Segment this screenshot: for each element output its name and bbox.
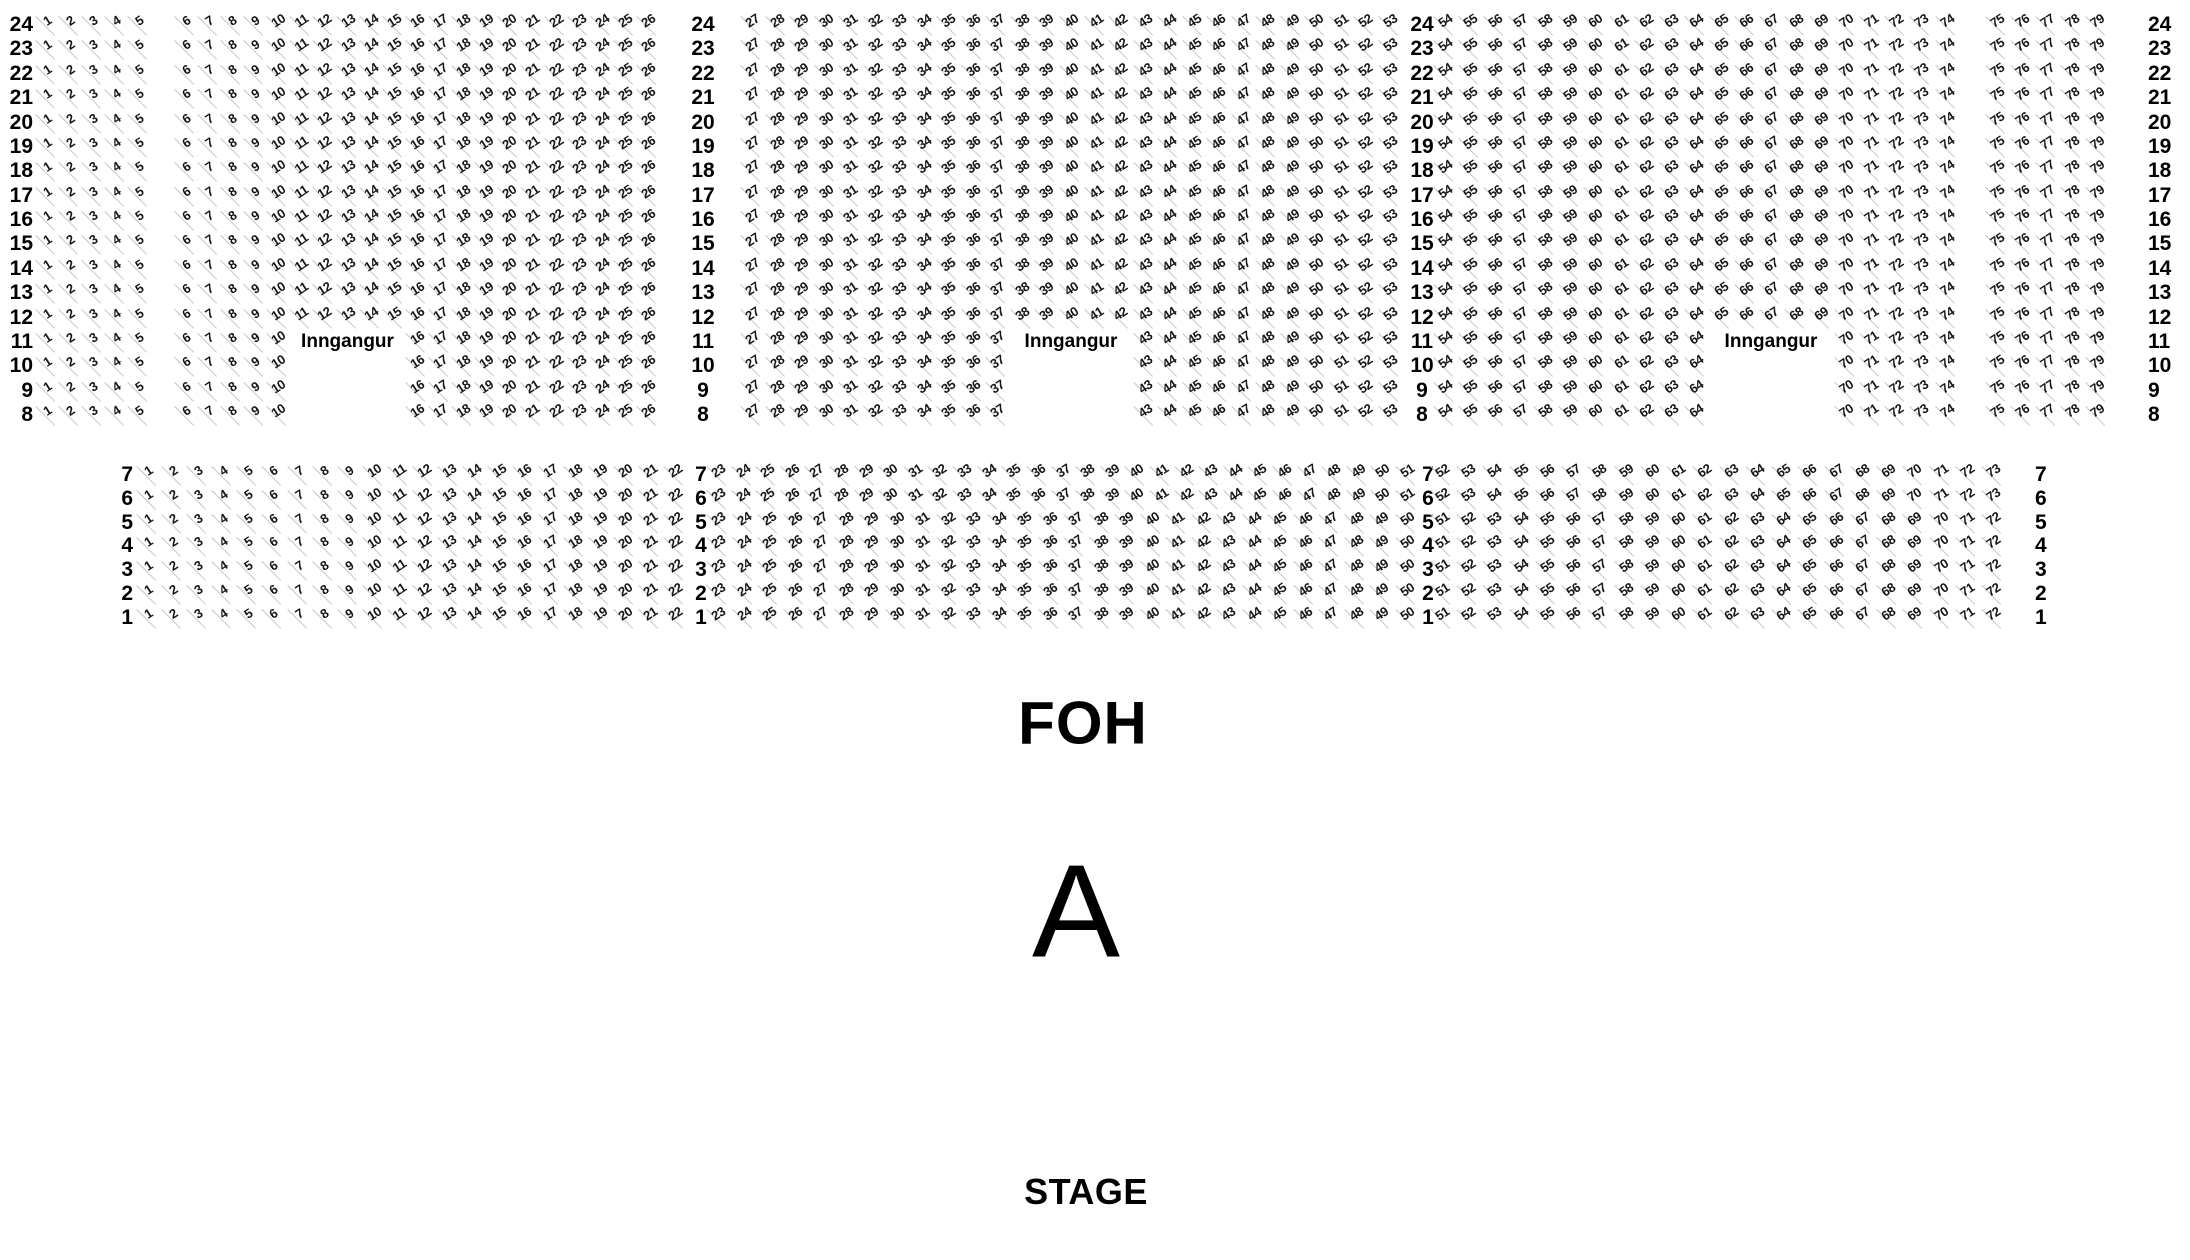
seat[interactable]: 76 (2011, 208, 2033, 232)
seat[interactable]: 25 (758, 534, 780, 558)
seat[interactable]: 14 (360, 86, 382, 110)
seat[interactable]: 74 (1936, 403, 1958, 427)
seat[interactable]: 59 (1641, 606, 1663, 630)
seat[interactable]: 7 (198, 330, 220, 354)
seat[interactable]: 54 (1434, 403, 1456, 427)
seat[interactable]: 36 (962, 354, 984, 378)
seat[interactable]: 65 (1710, 62, 1732, 86)
seat[interactable]: 8 (313, 463, 335, 487)
seat[interactable]: 66 (1735, 306, 1757, 330)
seat[interactable]: 38 (1090, 534, 1112, 558)
seat[interactable]: 24 (591, 306, 613, 330)
seat[interactable]: 53 (1379, 330, 1401, 354)
seat[interactable]: 14 (360, 306, 382, 330)
seat[interactable]: 41 (1150, 463, 1172, 487)
seat[interactable]: 2 (162, 487, 184, 511)
seat[interactable]: 73 (1910, 379, 1932, 403)
seat[interactable]: 73 (1910, 135, 1932, 159)
seat[interactable]: 73 (1910, 86, 1932, 110)
seat[interactable]: 9 (338, 534, 360, 558)
seat[interactable]: 58 (1534, 208, 1556, 232)
seat[interactable]: 34 (913, 135, 935, 159)
seat[interactable]: 28 (835, 534, 857, 558)
seat[interactable]: 8 (313, 558, 335, 582)
seat[interactable]: 53 (1379, 379, 1401, 403)
seat[interactable]: 69 (1810, 135, 1832, 159)
seat[interactable]: 25 (614, 159, 636, 183)
seat[interactable]: 75 (1986, 257, 2008, 281)
seat[interactable]: 6 (175, 232, 197, 256)
seat[interactable]: 52 (1457, 606, 1479, 630)
seat[interactable]: 24 (732, 463, 754, 487)
seat[interactable]: 41 (1085, 208, 1107, 232)
seat[interactable]: 32 (864, 37, 886, 61)
seat[interactable]: 24 (591, 281, 613, 305)
seat[interactable]: 37 (1064, 558, 1086, 582)
seat[interactable]: 52 (1354, 379, 1376, 403)
seat[interactable]: 52 (1354, 354, 1376, 378)
seat[interactable]: 28 (766, 184, 788, 208)
seat[interactable]: 56 (1562, 534, 1584, 558)
seat[interactable]: 41 (1085, 306, 1107, 330)
seat[interactable]: 21 (521, 379, 543, 403)
seat[interactable]: 47 (1232, 232, 1254, 256)
seat[interactable]: 46 (1207, 379, 1229, 403)
seat[interactable]: 5 (128, 330, 150, 354)
seat[interactable]: 58 (1534, 184, 1556, 208)
seat[interactable]: 54 (1510, 558, 1532, 582)
seat[interactable]: 32 (864, 306, 886, 330)
seat[interactable]: 1 (36, 184, 58, 208)
seat[interactable]: 57 (1509, 354, 1531, 378)
seat[interactable]: 27 (741, 379, 763, 403)
seat[interactable]: 17 (539, 511, 561, 535)
seat[interactable]: 30 (886, 582, 908, 606)
seat[interactable]: 56 (1484, 208, 1506, 232)
seat[interactable]: 31 (911, 558, 933, 582)
seat[interactable]: 46 (1207, 257, 1229, 281)
seat[interactable]: 31 (839, 62, 861, 86)
seat[interactable]: 2 (59, 13, 81, 37)
seat[interactable]: 12 (413, 487, 435, 511)
seat[interactable]: 75 (1986, 111, 2008, 135)
seat[interactable]: 60 (1584, 111, 1606, 135)
seat[interactable]: 75 (1986, 135, 2008, 159)
seat[interactable]: 3 (187, 606, 209, 630)
seat[interactable]: 20 (498, 403, 520, 427)
seat[interactable]: 5 (237, 534, 259, 558)
seat[interactable]: 1 (36, 135, 58, 159)
seat[interactable]: 19 (589, 582, 611, 606)
seat[interactable]: 55 (1536, 534, 1558, 558)
seat[interactable]: 15 (488, 487, 510, 511)
seat[interactable]: 44 (1158, 257, 1180, 281)
seat[interactable]: 2 (162, 511, 184, 535)
seat[interactable]: 15 (488, 534, 510, 558)
seat[interactable]: 11 (388, 534, 410, 558)
seat[interactable]: 47 (1232, 208, 1254, 232)
seat[interactable]: 4 (105, 13, 127, 37)
seat[interactable]: 43 (1134, 13, 1156, 37)
seat[interactable]: 50 (1305, 281, 1327, 305)
seat[interactable]: 64 (1685, 111, 1707, 135)
seat[interactable]: 47 (1232, 257, 1254, 281)
seat[interactable]: 13 (438, 558, 460, 582)
seat[interactable]: 11 (290, 111, 312, 135)
seat[interactable]: 74 (1936, 208, 1958, 232)
seat[interactable]: 23 (568, 159, 590, 183)
seat[interactable]: 49 (1281, 379, 1303, 403)
seat[interactable]: 6 (175, 37, 197, 61)
seat[interactable]: 33 (888, 403, 910, 427)
seat[interactable]: 77 (2036, 232, 2058, 256)
seat[interactable]: 62 (1635, 208, 1657, 232)
seat[interactable]: 60 (1584, 257, 1606, 281)
seat[interactable]: 59 (1559, 330, 1581, 354)
seat[interactable]: 68 (1877, 511, 1899, 535)
seat[interactable]: 64 (1772, 534, 1794, 558)
seat[interactable]: 22 (545, 111, 567, 135)
seat[interactable]: 18 (452, 62, 474, 86)
seat[interactable]: 46 (1294, 534, 1316, 558)
seat[interactable]: 45 (1183, 257, 1205, 281)
seat[interactable]: 19 (589, 511, 611, 535)
seat[interactable]: 62 (1635, 257, 1657, 281)
seat[interactable]: 58 (1534, 111, 1556, 135)
seat[interactable]: 74 (1936, 306, 1958, 330)
seat[interactable]: 78 (2061, 159, 2083, 183)
seat[interactable]: 41 (1166, 606, 1188, 630)
seat[interactable]: 36 (1039, 511, 1061, 535)
seat[interactable]: 22 (545, 37, 567, 61)
seat[interactable]: 51 (1330, 86, 1352, 110)
seat[interactable]: 37 (986, 159, 1008, 183)
seat[interactable]: 29 (790, 184, 812, 208)
seat[interactable]: 71 (1860, 354, 1882, 378)
seat[interactable]: 55 (1536, 606, 1558, 630)
seat[interactable]: 51 (1330, 184, 1352, 208)
seat[interactable]: 35 (1002, 463, 1024, 487)
seat[interactable]: 40 (1060, 184, 1082, 208)
seat[interactable]: 8 (221, 135, 243, 159)
seat[interactable]: 44 (1158, 184, 1180, 208)
seat[interactable]: 73 (1910, 306, 1932, 330)
seat[interactable]: 51 (1396, 463, 1418, 487)
seat[interactable]: 8 (221, 111, 243, 135)
seat[interactable]: 58 (1534, 330, 1556, 354)
seat[interactable]: 17 (429, 62, 451, 86)
seat[interactable]: 12 (313, 306, 335, 330)
seat[interactable]: 52 (1354, 111, 1376, 135)
seat[interactable]: 34 (913, 159, 935, 183)
seat[interactable]: 34 (913, 208, 935, 232)
seat[interactable]: 28 (766, 281, 788, 305)
seat[interactable]: 29 (860, 511, 882, 535)
seat[interactable]: 74 (1936, 330, 1958, 354)
seat[interactable]: 4 (105, 403, 127, 427)
seat[interactable]: 72 (1956, 463, 1978, 487)
seat[interactable]: 20 (498, 354, 520, 378)
seat[interactable]: 77 (2036, 184, 2058, 208)
seat[interactable]: 17 (539, 606, 561, 630)
seat[interactable]: 72 (1982, 582, 2004, 606)
seat[interactable]: 63 (1660, 306, 1682, 330)
seat[interactable]: 54 (1434, 111, 1456, 135)
seat[interactable]: 11 (388, 558, 410, 582)
seat[interactable]: 72 (1885, 86, 1907, 110)
seat[interactable]: 66 (1735, 232, 1757, 256)
seat[interactable]: 39 (1035, 306, 1057, 330)
seat[interactable]: 61 (1610, 159, 1632, 183)
seat[interactable]: 78 (2061, 330, 2083, 354)
seat[interactable]: 38 (1011, 257, 1033, 281)
seat[interactable]: 32 (864, 208, 886, 232)
seat[interactable]: 54 (1434, 354, 1456, 378)
seat[interactable]: 46 (1207, 208, 1229, 232)
seat[interactable]: 33 (962, 582, 984, 606)
seat[interactable]: 20 (498, 62, 520, 86)
seat[interactable]: 33 (962, 606, 984, 630)
seat[interactable]: 79 (2086, 159, 2108, 183)
seat[interactable]: 5 (128, 281, 150, 305)
seat[interactable]: 61 (1610, 184, 1632, 208)
seat[interactable]: 43 (1134, 111, 1156, 135)
seat[interactable]: 4 (105, 232, 127, 256)
seat[interactable]: 55 (1459, 306, 1481, 330)
seat[interactable]: 52 (1354, 135, 1376, 159)
seat[interactable]: 50 (1305, 13, 1327, 37)
seat[interactable]: 36 (962, 379, 984, 403)
seat[interactable]: 13 (337, 13, 359, 37)
seat[interactable]: 1 (36, 257, 58, 281)
seat[interactable]: 7 (288, 463, 310, 487)
seat[interactable]: 55 (1459, 354, 1481, 378)
seat[interactable]: 12 (413, 558, 435, 582)
seat[interactable]: 62 (1720, 534, 1742, 558)
seat[interactable]: 39 (1115, 582, 1137, 606)
seat[interactable]: 64 (1685, 403, 1707, 427)
seat[interactable]: 39 (1035, 257, 1057, 281)
seat[interactable]: 48 (1256, 37, 1278, 61)
seat[interactable]: 58 (1534, 354, 1556, 378)
seat[interactable]: 70 (1835, 257, 1857, 281)
seat[interactable]: 29 (855, 463, 877, 487)
seat[interactable]: 45 (1183, 232, 1205, 256)
seat[interactable]: 74 (1936, 232, 1958, 256)
seat[interactable]: 42 (1109, 257, 1131, 281)
seat[interactable]: 35 (937, 257, 959, 281)
seat[interactable]: 40 (1141, 558, 1163, 582)
seat[interactable]: 3 (187, 463, 209, 487)
seat[interactable]: 72 (1956, 487, 1978, 511)
seat[interactable]: 24 (733, 558, 755, 582)
seat[interactable]: 2 (59, 135, 81, 159)
seat[interactable]: 25 (758, 511, 780, 535)
seat[interactable]: 53 (1379, 306, 1401, 330)
seat[interactable]: 57 (1509, 111, 1531, 135)
seat[interactable]: 28 (766, 62, 788, 86)
seat[interactable]: 50 (1396, 534, 1418, 558)
seat[interactable]: 42 (1192, 511, 1214, 535)
seat[interactable]: 28 (766, 306, 788, 330)
seat[interactable]: 21 (521, 232, 543, 256)
seat[interactable]: 23 (568, 306, 590, 330)
seat[interactable]: 54 (1434, 135, 1456, 159)
seat[interactable]: 60 (1641, 487, 1663, 511)
seat[interactable]: 41 (1085, 159, 1107, 183)
seat[interactable]: 27 (741, 159, 763, 183)
seat[interactable]: 16 (406, 257, 428, 281)
seat[interactable]: 59 (1559, 86, 1581, 110)
seat[interactable]: 11 (388, 582, 410, 606)
seat[interactable]: 21 (521, 208, 543, 232)
seat[interactable]: 33 (888, 306, 910, 330)
seat[interactable]: 29 (790, 86, 812, 110)
seat[interactable]: 62 (1635, 62, 1657, 86)
seat[interactable]: 66 (1735, 208, 1757, 232)
seat[interactable]: 29 (790, 159, 812, 183)
seat[interactable]: 11 (290, 257, 312, 281)
seat[interactable]: 28 (766, 403, 788, 427)
seat[interactable]: 44 (1158, 159, 1180, 183)
seat[interactable]: 33 (953, 463, 975, 487)
seat[interactable]: 74 (1936, 379, 1958, 403)
seat[interactable]: 67 (1760, 208, 1782, 232)
seat[interactable]: 43 (1134, 37, 1156, 61)
seat[interactable]: 61 (1610, 62, 1632, 86)
seat[interactable]: 26 (637, 62, 659, 86)
seat[interactable]: 36 (962, 111, 984, 135)
seat[interactable]: 25 (614, 281, 636, 305)
seat[interactable]: 25 (614, 62, 636, 86)
seat[interactable]: 11 (388, 511, 410, 535)
seat[interactable]: 46 (1207, 281, 1229, 305)
seat[interactable]: 13 (337, 257, 359, 281)
seat[interactable]: 36 (962, 135, 984, 159)
seat[interactable]: 56 (1484, 159, 1506, 183)
seat[interactable]: 51 (1431, 558, 1453, 582)
seat[interactable]: 19 (475, 184, 497, 208)
seat[interactable]: 38 (1090, 558, 1112, 582)
seat[interactable]: 33 (888, 281, 910, 305)
seat[interactable]: 62 (1635, 330, 1657, 354)
seat[interactable]: 69 (1810, 257, 1832, 281)
seat[interactable]: 63 (1746, 606, 1768, 630)
seat[interactable]: 48 (1256, 135, 1278, 159)
seat[interactable]: 77 (2036, 403, 2058, 427)
seat[interactable]: 1 (137, 487, 159, 511)
seat[interactable]: 76 (2011, 257, 2033, 281)
seat[interactable]: 1 (36, 330, 58, 354)
seat[interactable]: 14 (360, 281, 382, 305)
seat[interactable]: 18 (452, 257, 474, 281)
seat[interactable]: 24 (591, 135, 613, 159)
seat[interactable]: 51 (1431, 511, 1453, 535)
seat[interactable]: 43 (1134, 208, 1156, 232)
seat[interactable]: 45 (1183, 62, 1205, 86)
seat[interactable]: 12 (413, 463, 435, 487)
seat[interactable]: 76 (2011, 62, 2033, 86)
seat[interactable]: 73 (1910, 184, 1932, 208)
seat[interactable]: 42 (1109, 111, 1131, 135)
seat[interactable]: 41 (1085, 232, 1107, 256)
seat[interactable]: 13 (337, 184, 359, 208)
seat[interactable]: 64 (1772, 606, 1794, 630)
seat[interactable]: 19 (589, 463, 611, 487)
seat[interactable]: 75 (1986, 208, 2008, 232)
seat[interactable]: 37 (986, 208, 1008, 232)
seat[interactable]: 20 (498, 184, 520, 208)
seat[interactable]: 22 (545, 232, 567, 256)
seat[interactable]: 60 (1584, 403, 1606, 427)
seat[interactable]: 32 (928, 463, 950, 487)
seat[interactable]: 4 (105, 379, 127, 403)
seat[interactable]: 57 (1509, 159, 1531, 183)
seat[interactable]: 51 (1431, 606, 1453, 630)
seat[interactable]: 64 (1772, 558, 1794, 582)
seat[interactable]: 65 (1798, 606, 1820, 630)
seat[interactable]: 11 (290, 184, 312, 208)
seat[interactable]: 65 (1710, 159, 1732, 183)
seat[interactable]: 48 (1256, 232, 1278, 256)
seat[interactable]: 57 (1509, 232, 1531, 256)
seat[interactable]: 11 (290, 232, 312, 256)
seat[interactable]: 49 (1347, 463, 1369, 487)
seat[interactable]: 31 (839, 208, 861, 232)
seat[interactable]: 55 (1459, 403, 1481, 427)
seat[interactable]: 17 (429, 135, 451, 159)
seat[interactable]: 21 (639, 487, 661, 511)
seat[interactable]: 24 (591, 354, 613, 378)
seat[interactable]: 71 (1860, 37, 1882, 61)
seat[interactable]: 59 (1559, 37, 1581, 61)
seat[interactable]: 24 (732, 487, 754, 511)
seat[interactable]: 73 (1982, 487, 2004, 511)
seat[interactable]: 3 (82, 403, 104, 427)
seat[interactable]: 44 (1224, 487, 1246, 511)
seat[interactable]: 30 (815, 159, 837, 183)
seat[interactable]: 59 (1559, 306, 1581, 330)
seat[interactable]: 48 (1345, 511, 1367, 535)
seat[interactable]: 8 (221, 281, 243, 305)
seat[interactable]: 71 (1860, 330, 1882, 354)
seat[interactable]: 66 (1735, 184, 1757, 208)
seat[interactable]: 18 (452, 135, 474, 159)
seat[interactable]: 43 (1134, 281, 1156, 305)
seat[interactable]: 20 (498, 111, 520, 135)
seat[interactable]: 77 (2036, 37, 2058, 61)
seat[interactable]: 34 (913, 257, 935, 281)
seat[interactable]: 31 (839, 257, 861, 281)
seat[interactable]: 15 (383, 86, 405, 110)
seat[interactable]: 17 (539, 558, 561, 582)
seat[interactable]: 63 (1660, 37, 1682, 61)
seat[interactable]: 69 (1810, 86, 1832, 110)
seat[interactable]: 45 (1183, 184, 1205, 208)
seat[interactable]: 1 (137, 463, 159, 487)
seat[interactable]: 8 (313, 487, 335, 511)
seat[interactable]: 2 (59, 354, 81, 378)
seat[interactable]: 7 (288, 558, 310, 582)
seat[interactable]: 10 (267, 306, 289, 330)
seat[interactable]: 29 (860, 534, 882, 558)
seat[interactable]: 25 (614, 403, 636, 427)
seat[interactable]: 20 (498, 306, 520, 330)
seat[interactable]: 67 (1760, 111, 1782, 135)
seat[interactable]: 29 (790, 354, 812, 378)
seat[interactable]: 29 (790, 403, 812, 427)
seat[interactable]: 46 (1207, 403, 1229, 427)
